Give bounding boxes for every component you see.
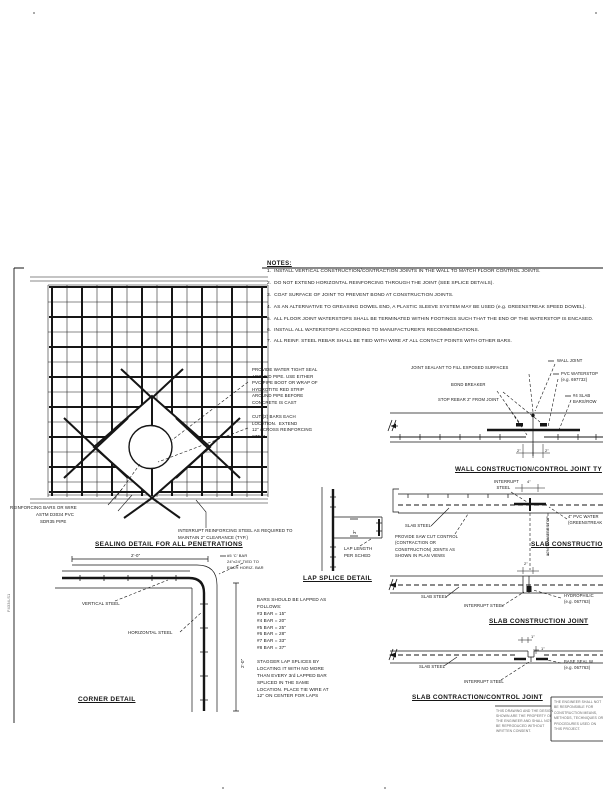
slab1-interrupt-label: INTERRUPT STEEL [494,479,519,491]
pipe-spec-label-2: SDR35 PIPE [40,519,66,526]
slab2-steel-leader [446,587,459,597]
note-item: 1. INSTALL VERTICAL CONSTRUCTION/CONTRAC… [267,268,541,275]
corner-bar-label: #5 'C' BAR 24"x24" TIED TO EACH HORIZ. B… [227,553,264,571]
slab1-dims [515,484,545,492]
note-item: 3. COAT SURFACE OF JOINT TO PREVENT BOND… [267,292,454,299]
note-item: 5. ALL FLOOR JOINT WATERSTOPS SHALL BE T… [267,316,593,323]
slab2-leaders [502,590,561,606]
lap-length-label: LAP LENGTH PER SCHED [344,546,372,559]
slab3-dim-depth: 1" [541,646,545,652]
wall-joint-fills [391,414,547,429]
joint-sealant-label: JOINT SEALANT TO FILL EXPOSED SURFACES [411,365,508,371]
wall-dim-left: 2" [517,448,521,454]
note-item: 4. AS AN ALTERNATIVE TO GREASING DOWEL E… [267,304,586,311]
lap-dim: 3" [352,530,358,534]
slab3-dim-width: 1" [531,634,535,640]
pipe-spec-label: ASTM D3034 PVC [36,512,74,519]
slab2-hydrophilic-label: HYDROPHILIC (e.g. 067763) [564,593,594,606]
horizontal-steel-label: HORIZONTAL STEEL [128,630,173,637]
slab2-dims [517,567,539,574]
slab1-waterstop [514,498,546,511]
reinforcing-bars-label: REINFORCING BARS OR WIRE [10,505,77,512]
slab1-title: SLAB CONSTRUCTIO [531,540,603,550]
cut-bars-label: CUT (2) BARS EACH LOCATION. EXTEND 12" A… [252,414,312,440]
corner-bar [62,578,204,711]
slab2-hydrophilic-strip [527,586,532,592]
slab1-pvc-label: 4" PVC WATER (GREENSTREAK [568,514,602,527]
bond-breaker-label: BOND BREAKER [451,382,485,388]
pvc-waterstop-label: PVC WATERSTOP (e.g. 697732) [561,371,598,384]
wall-joint-leaders [497,364,571,435]
note-item: 7. ALL REINF. STEEL REBAR SHALL BE TIED … [267,338,512,345]
slab1-provide-label: PROVIDE SAW CUT CONTROL (CONTRACTION OR … [395,534,458,559]
lap-schedule: BARS SHOULD BE LAPPED AS FOLLOWS: #3 BAR… [257,597,329,700]
wall-joint-title: WALL CONSTRUCTION/CONTROL JOINT TY [455,465,602,475]
slab3-title: SLAB CONTRACTION/CONTROL JOINT [412,693,543,703]
corner-leaders [115,563,243,632]
note-item: 6. INSTALL ALL WATERSTOPS ACCORDING TO M… [267,327,479,334]
drawing-sheet: NOTES: 1. INSTALL VERTICAL CONSTRUCTION/… [0,0,603,800]
slab2-interrupt-label: INTERRUPT STEEL [464,603,504,609]
slab-bars-label: #4 SLAB BARS/ROW [573,393,597,406]
sealing-detail-title: SEALING DETAIL FOR ALL PENETRATIONS [95,540,243,550]
disclaimer-text: THIS DRAWING AND THE DESIGN SHOWN ARE TH… [496,709,553,734]
slab3-interrupt-label: INTERRUPT STEEL [464,679,504,685]
slab1-steel-label: SLAB STEEL [405,523,431,529]
slab1-dim: 4" [527,479,531,485]
slab1-steel-leader [431,508,449,526]
corner-bar-ticks [80,575,208,700]
slab3-dims [518,637,539,654]
lap-leader [360,539,371,546]
slab3-steel-leader [444,657,457,666]
slab2-dim: 2" [524,561,528,567]
corner-detail-title: CORNER DETAIL [78,695,136,705]
wall-joint-label: WALL JOINT [557,358,582,364]
slab1-lines [393,489,603,513]
wall-dim-right: 2" [545,448,549,454]
slab3-base-seal-label: BASE SEAL W (e.g. 067763) [564,659,593,672]
stop-rebar-label: STOP REBAR 2" FROM JOINT [438,397,499,403]
corner-dim-top: 2'-0" [131,553,140,560]
lap-splice-title: LAP SPLICE DETAIL [303,574,372,584]
vertical-steel-label: VERTICAL STEEL [82,601,120,608]
slab2-lines [390,576,603,593]
slab1-waterstop-dim: 12" TO WATERSTOP [545,516,551,556]
pipe-seal-label: PROVIDE WATER TIGHT SEAL AROUND PIPE. US… [252,367,318,407]
stamp-box-text: THE ENGINEER SHALL NOT BE RESPONSIBLE FO… [554,700,603,733]
slab2-title: SLAB CONSTRUCTION JOINT [489,617,588,627]
plot-stamp-text: F4334-S1 [6,594,12,612]
corner-dim-right: 2'-0" [240,659,247,668]
note-item: 2. DO NOT EXTEND HORIZONTAL REINFORCING … [267,280,494,287]
pipe-penetration-circle [129,426,172,469]
slab3-steel-label: SLAB STEEL [419,664,445,670]
wall-joint-lines [390,413,603,456]
slab2-steel-label: SLAB STEEL [421,594,447,600]
